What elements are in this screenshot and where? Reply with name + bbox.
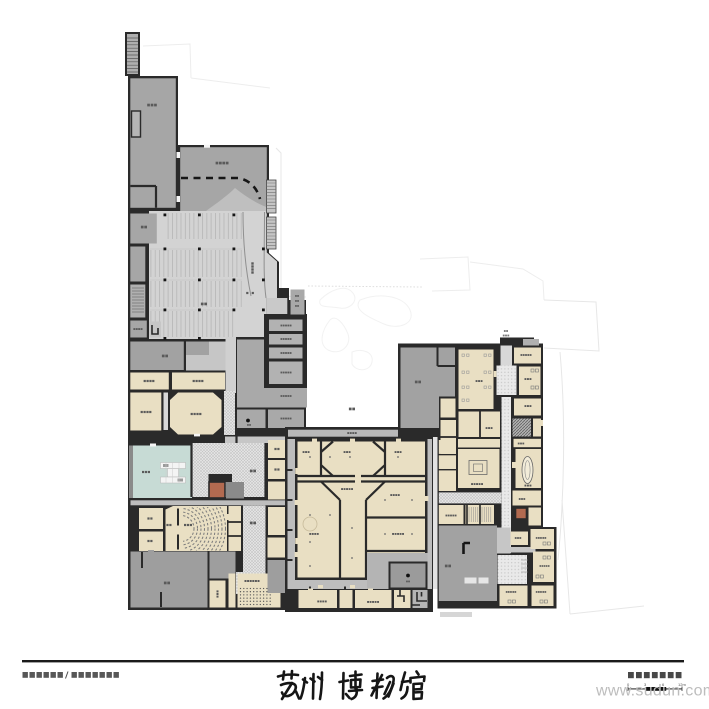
svg-text:www.sudun.com: www.sudun.com	[595, 683, 709, 700]
